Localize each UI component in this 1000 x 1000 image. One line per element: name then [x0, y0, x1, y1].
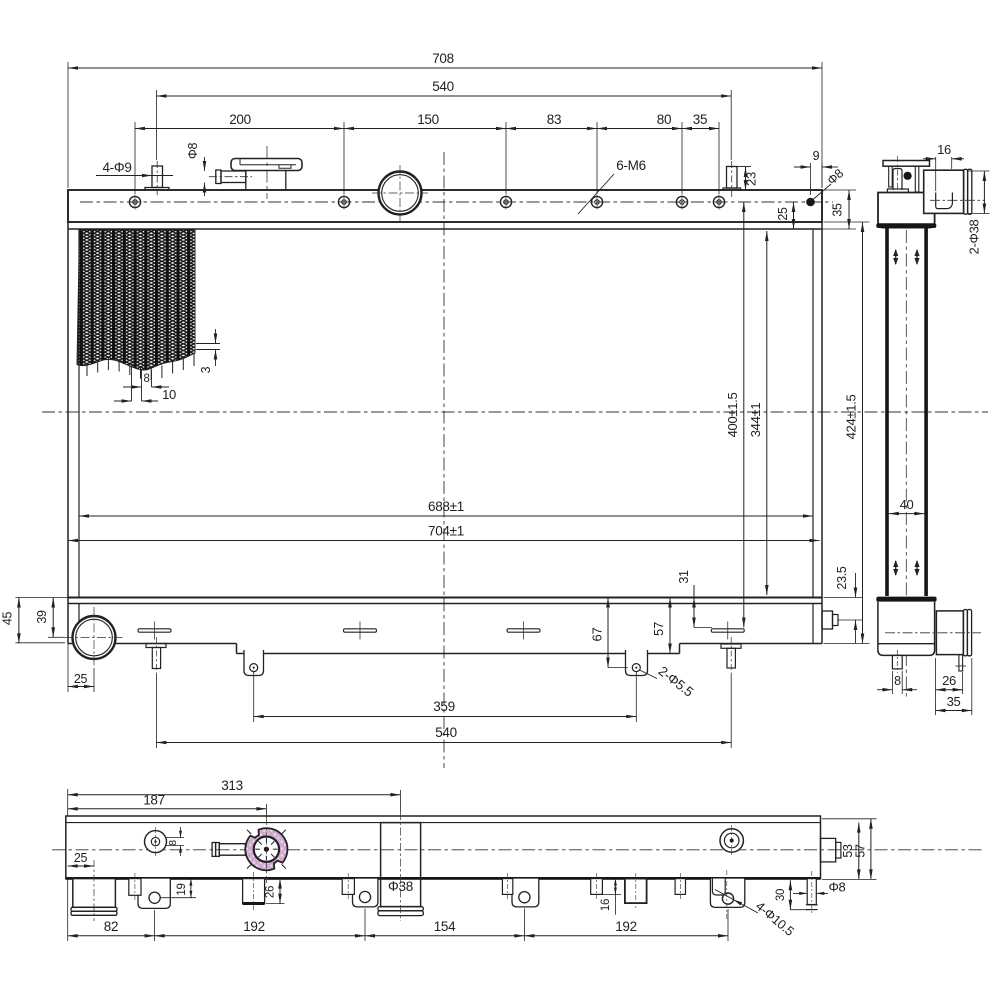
- svg-text:30: 30: [775, 889, 787, 901]
- svg-text:10: 10: [162, 387, 176, 402]
- svg-text:16: 16: [937, 142, 951, 157]
- svg-text:19: 19: [176, 883, 188, 895]
- svg-text:Φ8: Φ8: [828, 880, 845, 895]
- svg-text:40: 40: [900, 497, 914, 512]
- svg-text:4-Φ9: 4-Φ9: [102, 160, 131, 175]
- svg-text:25: 25: [74, 672, 88, 686]
- svg-text:57: 57: [651, 622, 666, 636]
- svg-text:150: 150: [417, 112, 439, 127]
- svg-text:45: 45: [1, 612, 15, 626]
- svg-text:154: 154: [434, 919, 456, 934]
- svg-text:23.5: 23.5: [835, 566, 849, 589]
- svg-text:35: 35: [693, 112, 707, 127]
- svg-text:704±1: 704±1: [428, 524, 464, 539]
- svg-text:25: 25: [776, 207, 790, 221]
- svg-text:57: 57: [854, 844, 868, 858]
- svg-text:8: 8: [894, 674, 901, 688]
- svg-text:31: 31: [677, 570, 691, 584]
- svg-text:688±1: 688±1: [428, 499, 464, 514]
- svg-text:39: 39: [35, 610, 49, 624]
- svg-text:313: 313: [221, 778, 243, 793]
- svg-text:708: 708: [432, 51, 454, 66]
- svg-text:35: 35: [947, 694, 961, 709]
- svg-text:192: 192: [243, 919, 265, 934]
- svg-text:344±1: 344±1: [748, 403, 763, 438]
- svg-text:Φ8: Φ8: [186, 142, 200, 159]
- svg-text:187: 187: [143, 793, 165, 808]
- svg-text:400±1.5: 400±1.5: [725, 393, 740, 438]
- svg-text:9: 9: [813, 149, 820, 163]
- svg-text:67: 67: [590, 628, 605, 642]
- svg-text:8: 8: [167, 840, 179, 846]
- svg-text:359: 359: [433, 699, 455, 714]
- svg-text:23: 23: [744, 172, 759, 186]
- svg-text:80: 80: [657, 112, 671, 127]
- svg-text:8: 8: [143, 373, 149, 385]
- svg-text:25: 25: [74, 851, 88, 865]
- svg-text:200: 200: [229, 112, 251, 127]
- svg-text:3: 3: [199, 366, 213, 373]
- svg-text:26: 26: [264, 886, 276, 898]
- svg-text:82: 82: [104, 919, 118, 934]
- svg-text:2-Φ38: 2-Φ38: [967, 219, 982, 254]
- svg-text:192: 192: [615, 919, 637, 934]
- svg-text:540: 540: [432, 79, 454, 94]
- svg-text:424±1.5: 424±1.5: [844, 395, 859, 440]
- svg-text:35: 35: [831, 203, 845, 217]
- svg-text:540: 540: [435, 725, 457, 740]
- svg-text:6-M6: 6-M6: [616, 158, 646, 173]
- svg-text:26: 26: [942, 673, 956, 688]
- svg-text:83: 83: [547, 112, 561, 127]
- svg-text:16: 16: [600, 899, 612, 911]
